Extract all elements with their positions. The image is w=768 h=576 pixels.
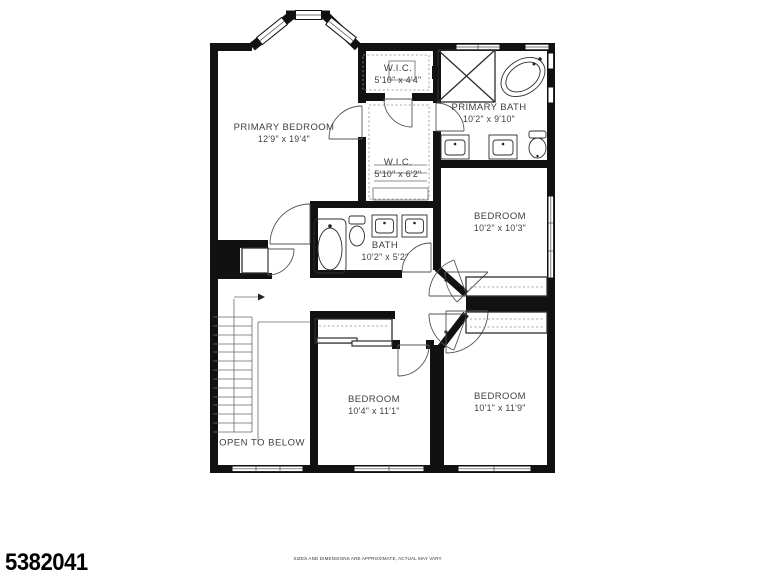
hall-bath-vanity <box>372 215 427 237</box>
primary-bath-vanity <box>441 135 517 159</box>
room-label-primary-bath: PRIMARY BATH 10'2" x 9'10" <box>451 102 526 126</box>
primary-bath-toilet <box>529 131 546 158</box>
disclaimer-text: SIZES AND DIMENSIONS ARE APPROXIMATE, AC… <box>294 556 443 561</box>
room-label-bath: BATH 10'2" x 5'2" <box>362 240 409 264</box>
staircase <box>213 294 310 445</box>
bay-window <box>252 11 358 48</box>
shower <box>432 50 495 102</box>
listing-id: 5382041 <box>5 549 88 576</box>
room-label-bedroom-right: BEDROOM 10'2" x 10'3" <box>474 211 526 235</box>
bedroom-closet <box>315 319 392 346</box>
walk-in-closet-mid <box>369 105 429 200</box>
room-label-wic-top: W.I.C. 5'10" x 4'4" <box>375 63 422 87</box>
hall-closet <box>242 248 294 275</box>
room-label-bedroom-bottom-right: BEDROOM 10'1" x 11'9" <box>474 391 526 415</box>
room-label-bedroom-bottom-middle: BEDROOM 10'4" x 11'1" <box>348 394 400 418</box>
room-label-wic-mid: W.I.C. 5'10" x 6'2" <box>375 157 422 181</box>
hall-bath-tub <box>314 219 346 273</box>
floorplan-page: PRIMARY BEDROOM 12'9" x 19'4" W.I.C. 5'1… <box>0 0 768 576</box>
open-to-below-label: OPEN TO BELOW <box>219 438 305 449</box>
freestanding-tub <box>494 49 553 104</box>
room-label-primary-bedroom: PRIMARY BEDROOM 12'9" x 19'4" <box>234 122 335 146</box>
